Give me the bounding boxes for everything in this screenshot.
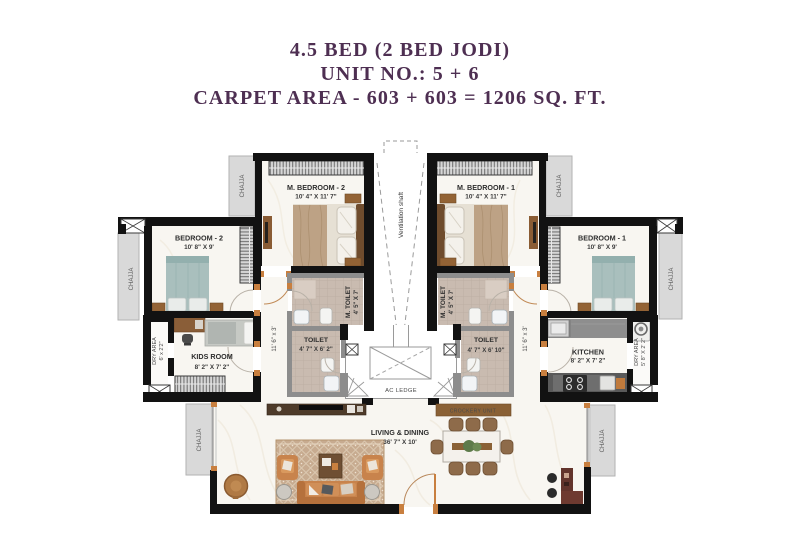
svg-text:36' 7" X 10': 36' 7" X 10' xyxy=(383,439,417,446)
svg-text:KIDS ROOM: KIDS ROOM xyxy=(191,352,233,361)
svg-text:10' 8" X 9': 10' 8" X 9' xyxy=(587,244,617,251)
svg-text:CHAJJA: CHAJJA xyxy=(240,175,246,198)
svg-text:M. BEDROOM - 1: M. BEDROOM - 1 xyxy=(457,183,515,192)
svg-text:8' 2" X 7' 2": 8' 2" X 7' 2" xyxy=(195,364,230,371)
svg-text:M. TOILET: M. TOILET xyxy=(440,286,447,318)
svg-text:11' 6" x 3': 11' 6" x 3' xyxy=(523,326,529,351)
svg-text:8' 2" X 7' 2": 8' 2" X 7' 2" xyxy=(571,358,606,365)
svg-text:AC LEDGE: AC LEDGE xyxy=(385,388,417,394)
svg-text:10' 4" X 11' 7": 10' 4" X 11' 7" xyxy=(465,194,506,201)
svg-text:CHAJJA: CHAJJA xyxy=(557,175,563,198)
svg-text:TOILET: TOILET xyxy=(474,337,499,344)
svg-text:M. TOILET: M. TOILET xyxy=(345,286,352,318)
svg-text:CHAJJA: CHAJJA xyxy=(129,268,135,291)
svg-text:CHAJJA: CHAJJA xyxy=(669,268,675,291)
svg-text:4' 5" X 7': 4' 5" X 7' xyxy=(449,289,455,314)
svg-text:11' 6" x 3': 11' 6" x 3' xyxy=(272,326,278,351)
svg-text:DRY AREA: DRY AREA xyxy=(152,337,158,365)
svg-text:KITCHEN: KITCHEN xyxy=(572,348,604,357)
svg-text:TOILET: TOILET xyxy=(304,337,329,344)
svg-text:Ventilation shaft: Ventilation shaft xyxy=(398,192,405,238)
svg-text:M. BEDROOM - 2: M. BEDROOM - 2 xyxy=(287,183,345,192)
svg-text:CHAJJA: CHAJJA xyxy=(600,430,606,453)
svg-text:LIVING & DINING: LIVING & DINING xyxy=(371,428,430,437)
svg-text:4' 7" X 6' 10": 4' 7" X 6' 10" xyxy=(467,347,504,354)
svg-text:CROCKERY UNIT: CROCKERY UNIT xyxy=(450,409,496,415)
svg-text:UNIT NO.: 5 + 6: UNIT NO.: 5 + 6 xyxy=(320,63,479,85)
svg-text:CHAJJA: CHAJJA xyxy=(197,429,203,452)
svg-text:5' 8" X 2' 2": 5' 8" X 2' 2" xyxy=(641,338,647,366)
svg-text:10' 8" X 9': 10' 8" X 9' xyxy=(184,244,214,251)
svg-text:BEDROOM - 2: BEDROOM - 2 xyxy=(175,234,223,243)
svg-text:DRY AREA: DRY AREA xyxy=(634,338,640,366)
svg-text:CARPET AREA - 603 + 603 = 1206: CARPET AREA - 603 + 603 = 1206 SQ. FT. xyxy=(193,87,606,109)
svg-text:4.5 BED (2 BED JODI): 4.5 BED (2 BED JODI) xyxy=(290,39,510,61)
svg-text:4' 5" X 7': 4' 5" X 7' xyxy=(354,289,360,314)
svg-text:10' 4" X 11' 7": 10' 4" X 11' 7" xyxy=(295,194,336,201)
svg-text:BEDROOM - 1: BEDROOM - 1 xyxy=(578,234,626,243)
svg-text:6' x 2'2": 6' x 2'2" xyxy=(159,341,165,360)
svg-text:4' 7" X 6' 2": 4' 7" X 6' 2" xyxy=(299,346,333,353)
